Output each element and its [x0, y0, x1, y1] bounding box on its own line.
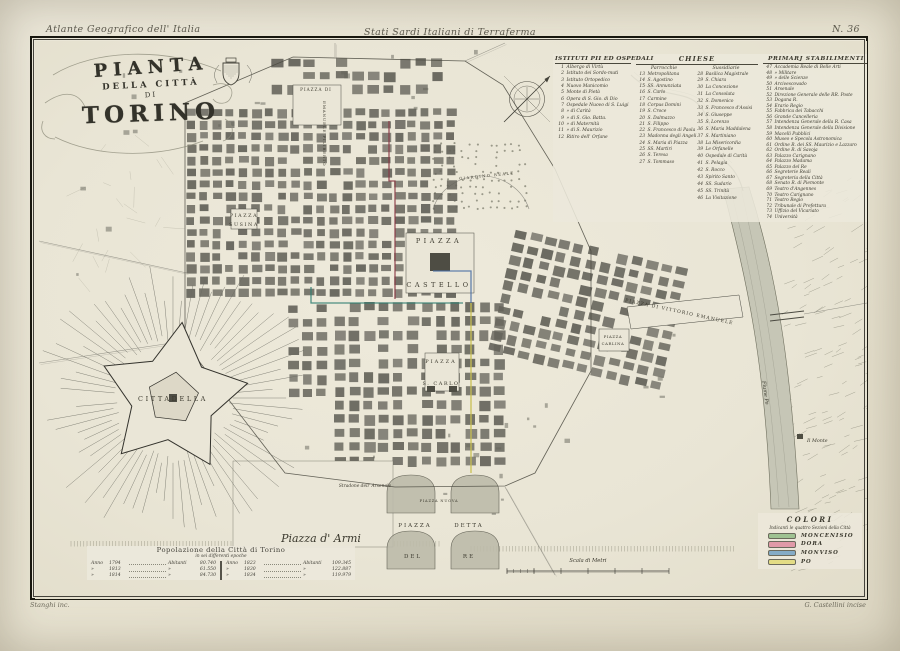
map-label-piazza-di: PIAZZA DI — [300, 87, 332, 92]
legend-entry: 46La Visitazione — [694, 196, 758, 203]
legend-column-parrocchie: Parrocchie 13Metropolitana14S. Agostino1… — [636, 66, 692, 203]
color-swatch — [768, 559, 796, 566]
map-label-piazza-detta-4: RE — [463, 554, 475, 560]
color-swatch — [768, 550, 796, 557]
legend-entry: 34S. Giuseppe — [694, 113, 758, 120]
map-label-piazza-castello-2: CASTELLO — [406, 281, 471, 289]
legend-entry: 28Basilica Magistrale — [694, 72, 758, 79]
colori-subtitle: Indicanti le quattro Sezioni della Città — [758, 525, 862, 530]
map-label-cittadella: CITTADELLA — [138, 395, 208, 403]
legend-entry: 37S. Martiniano — [694, 134, 758, 141]
map-label-emanuele-filiberto: EMANUELE FILIBERTO — [322, 101, 327, 166]
colori-row-po: PO — [758, 559, 862, 566]
map-label-piazza-detta-2: DETTA — [454, 523, 484, 529]
engraver-signature-right: G. Castellini incise — [805, 601, 866, 609]
color-swatch — [768, 533, 796, 540]
population-table-left: Anno1794Abitanti80.740»1813»61.550»1814»… — [87, 561, 220, 580]
legend-entry: 36S. Maria Maddalena — [694, 127, 758, 134]
legend-entry: 45SS. Trinità — [694, 189, 758, 196]
legend-header-primarj: PRIMARJ STABILIMENTI — [763, 55, 867, 64]
legend-group-chiese: CHIESE Parrocchie 13Metropolitana14S. Ag… — [636, 55, 758, 220]
map-label-piazza-carlina-1: PIAZZA — [604, 334, 622, 339]
map-label-piazza-carlina-2: CARLINA — [602, 341, 625, 346]
map-label-piazza-susina-2: SUSINA — [229, 222, 259, 228]
colori-title: COLORI — [758, 515, 862, 524]
population-table: Popolazione della Città di Torino in sei… — [87, 546, 355, 580]
legend-entry: 29S. Chiara — [694, 78, 758, 85]
legend-entry: 33S. Francesco d'Assisi — [694, 106, 758, 113]
legend-entry: 43Spirito Santo — [694, 175, 758, 182]
colori-legend: COLORI Indicanti le quattro Sezioni dell… — [758, 513, 862, 569]
map-label-piazza-s-carlo-2: S. CARLO — [422, 381, 459, 387]
legend-entry: 41S. Pelagia — [694, 161, 758, 168]
map-legend: ISTITUTI PII ED OSPEDALI 1Albergo di Vir… — [553, 54, 867, 222]
legend-subheader-parrocchie: Parrocchie — [636, 66, 692, 71]
map-label-scala-di-metri: Scala di Metri — [569, 558, 607, 564]
legend-entry: 38La Misericordia — [694, 141, 758, 148]
legend-column-sussidiarie: Sussidiarie 28Basilica Magistrale29S. Ch… — [694, 66, 758, 203]
map-frame: PIAZZA DIEMANUELE FILIBERTOPIAZZASUSINAP… — [30, 36, 868, 600]
legend-subheader-sussidiarie: Sussidiarie — [694, 66, 758, 71]
map-label-piazza-detta-1: PIAZZA — [398, 523, 431, 529]
legend-header-chiese: CHIESE — [636, 55, 758, 65]
map-label-piazza-susina-1: PIAZZA — [230, 213, 258, 219]
map-label-piazza-nuova: PIAZZA NUOVA — [420, 499, 459, 503]
map-area: PIAZZA DIEMANUELE FILIBERTOPIAZZASUSINAP… — [35, 41, 867, 599]
map-label-il-monte: Il Monte — [806, 438, 828, 444]
legend-entry: 44SS. Sudario — [694, 182, 758, 189]
engraver-signature-left: Stanghi inc. — [30, 601, 70, 609]
legend-entry: 27S. Tommaso — [636, 160, 692, 166]
population-row: »1834»119.979 — [226, 573, 351, 579]
legend-header-istituti: ISTITUTI PII ED OSPEDALI — [555, 55, 631, 64]
plate-number: N. 36 — [832, 24, 860, 35]
map-label-giardino-reale: GIARDINO REALE — [459, 170, 515, 181]
colori-row-dora: DORA — [758, 541, 862, 548]
legend-entry: 31La Consolata — [694, 92, 758, 99]
map-label-piazza-s-carlo-1: PIAZZA — [425, 359, 457, 365]
legend-entry: 39Le Orfanelle — [694, 147, 758, 154]
map-label-piazza-d-armi: Piazza d' Armi — [280, 532, 361, 545]
map-label-piazza-detta-3: DEL — [404, 554, 422, 560]
map-label-piazza-castello-1: PIAZZA — [416, 237, 462, 245]
legend-entry: 42S. Rocco — [694, 168, 758, 175]
engraved-map-sheet: Atlante Geografico dell' Italia Stati Sa… — [0, 0, 900, 651]
population-table-subtitle: in sei differenti epoche — [87, 554, 355, 559]
legend-entry: 35S. Lorenzo — [694, 120, 758, 127]
population-table-right: Anno1823Abitanti109.345»1830»122.887»183… — [220, 561, 355, 580]
legend-entry: 32S. Domenico — [694, 99, 758, 106]
colori-row-monviso: MONVISO — [758, 550, 862, 557]
legend-entry: 40Ospedale di Carità — [694, 154, 758, 161]
population-table-title: Popolazione della Città di Torino — [87, 546, 355, 554]
population-row: »1814»84.730 — [91, 573, 216, 579]
colori-row-moncenisio: MONCENISIO — [758, 533, 862, 540]
map-label-stradone-arsenale: Stradone dell' Arsenale — [339, 484, 392, 489]
legend-column-primarj: PRIMARJ STABILIMENTI 47Accademia Reale d… — [763, 55, 867, 220]
legend-column-istituti: ISTITUTI PII ED OSPEDALI 1Albergo di Vir… — [555, 55, 631, 220]
colori-rows: MONCENISIODORAMONVISOPO — [758, 533, 862, 566]
color-swatch — [768, 541, 796, 548]
legend-entry: 74Università — [763, 215, 867, 221]
legend-entry: 12Ritiro dell' Orfane — [555, 135, 631, 141]
legend-entry: 30La Concezione — [694, 85, 758, 92]
